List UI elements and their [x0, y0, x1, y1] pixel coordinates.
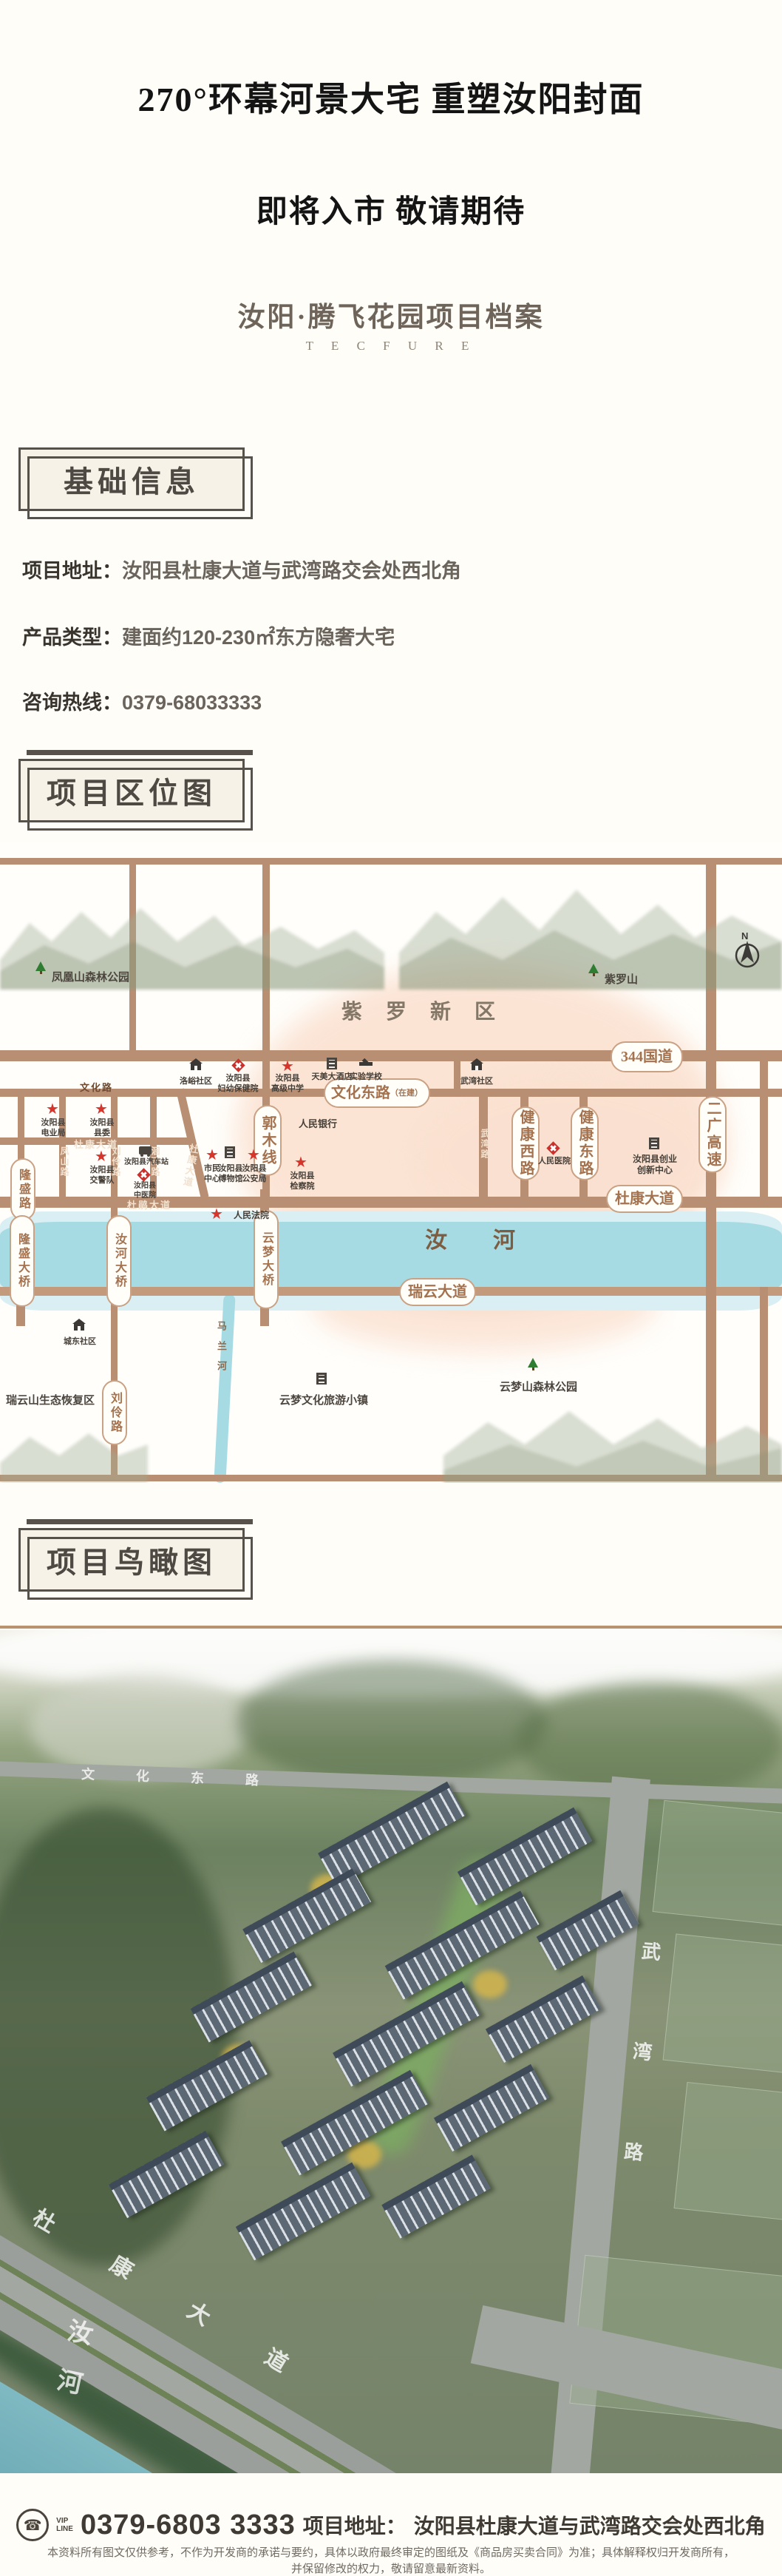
roadname-wuwan: 武湾路 — [479, 1129, 492, 1160]
capsule-wenhua-dong-suffix: （在建） — [390, 1089, 423, 1098]
building-icon — [316, 1373, 327, 1385]
poi-jianchayuan: 汝阳县 检察院 — [279, 1172, 325, 1192]
mountains-bottom-right — [443, 1359, 782, 1483]
poi-renmin-bank: 人民银行 — [288, 1118, 347, 1130]
building-icon — [327, 1058, 337, 1069]
section-header-aerial: 项目鸟瞰图 — [18, 1528, 245, 1592]
poi-dianye: 汝阳县 电业局 — [31, 1118, 75, 1139]
capsule-wenhua-dong: 文化东路 （在建） — [324, 1078, 430, 1108]
capsule-dukang: 杜康大道 — [606, 1185, 683, 1213]
poi-zhongyiyuan: 汝阳县 中医院 — [123, 1182, 167, 1200]
star-icon: ★ — [210, 1207, 223, 1222]
footer-address: 汝阳县杜康大道与武湾路交会处西北角 — [414, 2510, 766, 2540]
info-address-value: 汝阳县杜康大道与武湾路交会处西北角 — [122, 555, 461, 584]
building-slab — [381, 2154, 491, 2238]
poi-qichezhan: 汝阳县汽车站 — [115, 1158, 177, 1168]
tree-icon — [528, 1358, 538, 1368]
info-row-hotline: 咨询热线： 0379-68033333 — [22, 686, 262, 715]
disclaimer-line1: 本资料所有图文仅供参考，不作为开发商的承诺与要约，具体以政府最终审定的图纸及《商… — [0, 2544, 782, 2560]
star-icon: ★ — [247, 1148, 260, 1163]
aerial-top-rule — [0, 1626, 782, 1629]
info-address-label: 项目地址： — [22, 555, 122, 584]
star-icon: ★ — [95, 1149, 108, 1164]
yunmeng-park-label: 云梦山森林公园 — [500, 1379, 577, 1394]
district-label: 紫罗新区 — [341, 995, 519, 1025]
disclaimer-line2: 并保留修改的权力，敬请留意最新资料。 — [0, 2560, 782, 2576]
poi-gaozhong: 汝阳县 高级中学 — [263, 1074, 312, 1095]
bus-station-icon — [139, 1146, 152, 1155]
roadname-malan: 马兰河 — [214, 1321, 228, 1381]
school-icon — [359, 1062, 373, 1066]
location-map: N 紫罗新区 凤凰山森林公园 紫罗山 云梦山森林公园 云梦文化旅游小镇 瑞云山生… — [0, 842, 782, 1483]
poi-shiyan: 实验学校 — [341, 1072, 390, 1083]
capsule-longsheng-road: 隆盛路 — [10, 1158, 35, 1220]
poi-chuangye: 汝阳县创业 创新中心 — [621, 1154, 689, 1176]
poi-gongan: 汝阳县 公安局 — [232, 1164, 276, 1185]
aerial-view-image: 文化东路 武湾路 杜康大道 — [0, 1630, 782, 2473]
roadname-wenhua: 文化路 — [80, 1080, 113, 1094]
capsule-ruiyun: 瑞云大道 — [399, 1278, 476, 1306]
mountain-shadow — [237, 1660, 547, 1785]
capsule-g344: 344国道 — [611, 1041, 683, 1072]
capsule-erguang: 二广高速 — [698, 1096, 727, 1173]
compass-icon: N — [732, 930, 763, 972]
footer-address-label: 项目地址： — [303, 2510, 407, 2540]
yunmeng-town-label: 云梦文化旅游小镇 — [279, 1392, 368, 1407]
capsule-longsheng-bridge: 隆盛大桥 — [10, 1215, 35, 1307]
star-icon: ★ — [294, 1155, 307, 1170]
fenghuang-park-label: 凤凰山森林公园 — [52, 969, 129, 984]
field — [663, 1933, 782, 2075]
brand-english: T E C F U R E — [0, 339, 782, 354]
vip-line-label: VIP LINE — [56, 2517, 73, 2533]
roadname-fengshan: 凤山路 — [58, 1146, 71, 1177]
road-fengshan — [59, 1089, 66, 1200]
capsule-wenhua-dong-text: 文化东路 — [331, 1086, 390, 1101]
poi-fuyou: 汝阳县 妇幼保健院 — [208, 1074, 268, 1095]
svg-text:N: N — [741, 930, 748, 942]
capsule-yunmeng-bridge: 云梦大桥 — [254, 1210, 279, 1309]
footer-phone-number: 0379-6803 3333 — [81, 2509, 296, 2541]
tree-icon — [588, 964, 599, 973]
building-slab — [242, 1868, 371, 1963]
capsule-jiankang-west: 健康西路 — [511, 1106, 540, 1180]
main-title-line2: 即将入市 敬请期待 — [0, 186, 782, 231]
building-slab — [318, 1782, 466, 1887]
info-hotline-value: 0379-68033333 — [122, 692, 262, 714]
home-icon — [74, 1324, 84, 1331]
info-type-label: 产品类型： — [22, 621, 122, 650]
vip-label-top: VIP — [56, 2517, 73, 2525]
brand-title: 汝阳·腾飞花园项目档案 — [0, 294, 782, 334]
home-icon — [472, 1064, 482, 1070]
road-east-edge1 — [760, 1054, 768, 1202]
poi-fayuan: 人民法院 — [228, 1210, 275, 1221]
tree-icon — [35, 961, 46, 971]
field — [674, 2082, 782, 2222]
main-title-line1: 270°环幕河景大宅 重塑汝阳封面 — [0, 72, 782, 121]
poi-jiaojing: 汝阳县 交警队 — [80, 1166, 124, 1186]
info-row-address: 项目地址： 汝阳县杜康大道与武湾路交会处西北角 — [22, 555, 461, 584]
chengdong-label: 城东社区 — [58, 1337, 102, 1348]
info-row-type: 产品类型： 建面约120-230㎡东方隐奢大宅 — [22, 621, 395, 650]
section-header-basic-info: 基础信息 — [18, 447, 245, 511]
footer-contact-bar: ☎ VIP LINE 0379-6803 3333 项目地址： 汝阳县杜康大道与… — [0, 2509, 782, 2541]
phone-icon: ☎ — [16, 2509, 49, 2541]
star-icon: ★ — [46, 1102, 59, 1117]
poi-wuwan-sq: 武湾社区 — [452, 1077, 501, 1087]
field — [653, 1800, 782, 1927]
building-icon — [649, 1137, 659, 1149]
star-icon: ★ — [281, 1059, 294, 1074]
star-icon: ★ — [95, 1102, 108, 1117]
ruiyun-eco-label: 瑞云山生态恢复区 — [6, 1392, 95, 1407]
vip-label-bottom: LINE — [56, 2525, 73, 2533]
capsule-liuling-road: 刘伶路 — [102, 1380, 127, 1445]
home-icon — [191, 1064, 201, 1070]
star-icon: ★ — [205, 1148, 219, 1163]
capsule-ruhe-bridge: 汝河大桥 — [106, 1215, 132, 1307]
building-slab — [434, 2064, 549, 2151]
building-icon — [225, 1146, 235, 1158]
building-slab — [458, 1808, 593, 1906]
building-slab — [236, 2163, 371, 2261]
poi-renmin-hospital: 人民医院 — [532, 1157, 577, 1167]
poi-xianwei: 汝阳县 县委 — [80, 1118, 124, 1139]
info-hotline-label: 咨询热线： — [22, 686, 122, 715]
promo-page: 270°环幕河景大宅 重塑汝阳封面 即将入市 敬请期待 汝阳·腾飞花园项目档案 … — [0, 0, 782, 2576]
autumn-trees — [473, 1970, 507, 1998]
river-label: 汝河 — [425, 1222, 561, 1254]
cliff-haze — [30, 1674, 251, 1778]
hospital-icon — [137, 1168, 150, 1181]
info-type-value: 建面约120-230㎡东方隐奢大宅 — [122, 621, 395, 650]
capsule-jiankang-east: 健康东路 — [571, 1106, 599, 1180]
section-header-location-map: 项目区位图 — [18, 759, 245, 822]
ziluo-mountain-label: 紫罗山 — [605, 971, 638, 987]
aerial-road-wenhua-label: 文化东路 — [81, 1764, 301, 1791]
